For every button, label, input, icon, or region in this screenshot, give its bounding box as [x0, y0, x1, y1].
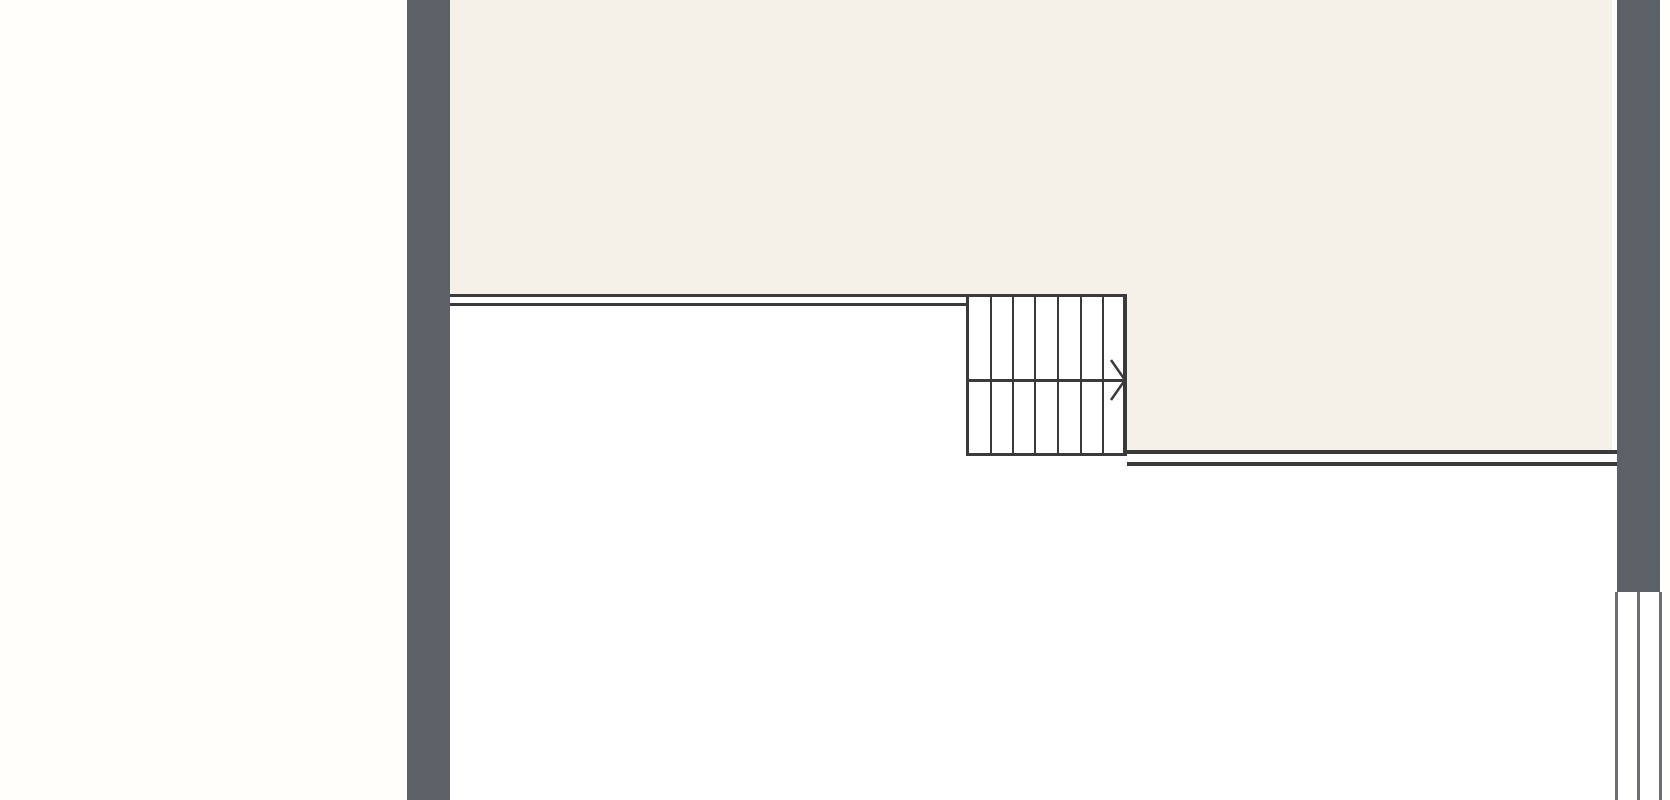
staircase: [966, 297, 1127, 456]
lower-wall-outer-line: [1125, 450, 1617, 454]
upper-wall-inner-line: [450, 303, 969, 306]
stair-tread-line: [1034, 297, 1036, 453]
stair-landing-line: [969, 379, 1123, 382]
window-pane-line: [1659, 592, 1662, 800]
stair-tread-line: [990, 297, 992, 453]
stair-tread-line: [1012, 297, 1014, 453]
upper-room: [450, 0, 1612, 294]
chevron-right-icon: [1111, 360, 1125, 400]
window-pane-line: [1615, 592, 1618, 800]
stair-tread-line: [1080, 297, 1082, 453]
left-exterior-wall: [407, 0, 450, 800]
lower-wall-inner-line: [1127, 462, 1617, 466]
window-pane-line: [1637, 592, 1640, 800]
stair-tread-line: [1057, 297, 1059, 453]
upper-room-right-extension: [1127, 294, 1612, 451]
stair-direction-arrow-icon: [1108, 357, 1128, 403]
stair-tread-line: [1102, 297, 1104, 453]
floor-plan-canvas: [0, 0, 1670, 800]
window-symbol: [1615, 592, 1662, 800]
right-exterior-wall: [1617, 0, 1660, 592]
